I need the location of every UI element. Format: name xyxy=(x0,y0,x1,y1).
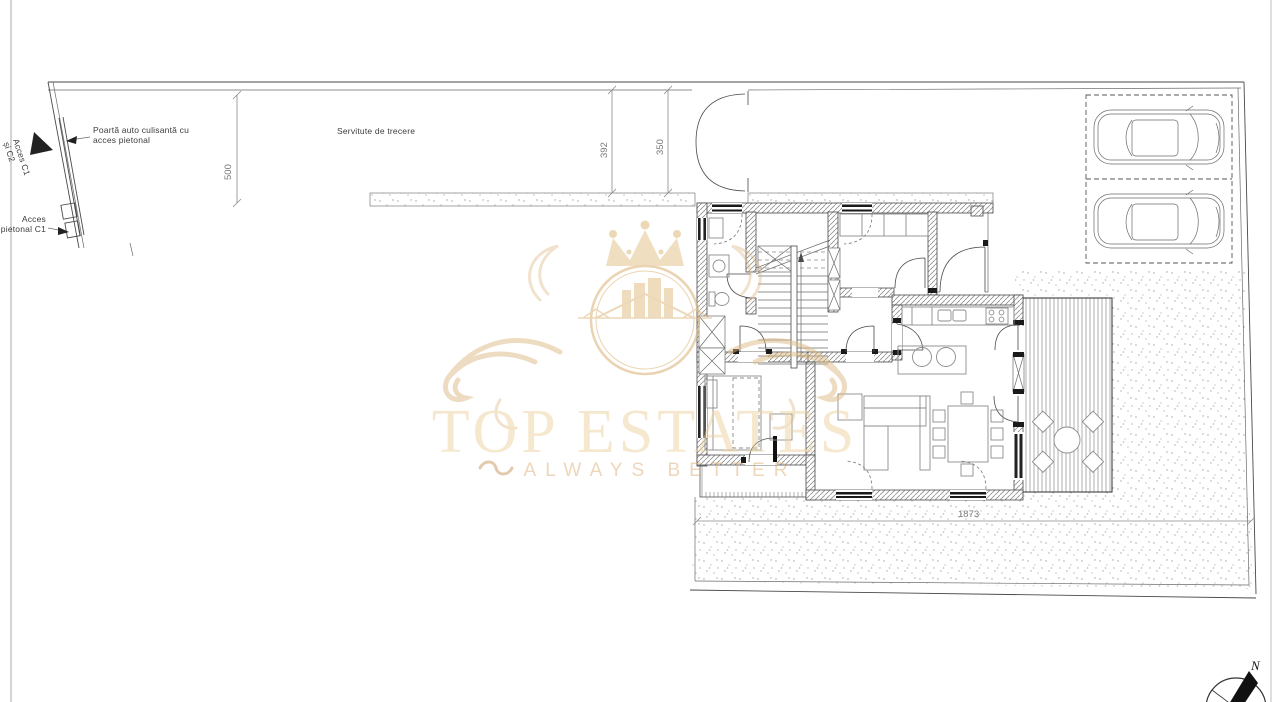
car-2 xyxy=(1094,190,1224,254)
site-plan-page: TOP ESTATES ALWAYS BETTER 500 392 350 18… xyxy=(0,0,1280,702)
svg-text:pietonal C1: pietonal C1 xyxy=(1,224,46,234)
brand-tagline: ALWAYS BETTER xyxy=(524,460,797,481)
dimension-392: 392 xyxy=(599,86,616,197)
dimension-500: 500 xyxy=(223,91,241,207)
floor-plan-drawing: TOP ESTATES ALWAYS BETTER 500 392 350 18… xyxy=(0,0,1280,702)
access-c1c2-label: Acces C1 și C2 xyxy=(2,132,53,180)
brand-name: TOP ESTATES xyxy=(432,398,859,466)
deck-door-openings xyxy=(1013,326,1024,480)
parking-area xyxy=(1086,95,1232,263)
svg-text:392: 392 xyxy=(599,142,610,158)
svg-text:350: 350 xyxy=(655,139,666,155)
svg-text:Acces: Acces xyxy=(22,214,46,224)
entrance-double-gate xyxy=(696,91,748,192)
car-1 xyxy=(1094,106,1224,170)
north-label: N xyxy=(1250,658,1261,673)
svg-text:1873: 1873 xyxy=(958,509,979,520)
dimension-350: 350 xyxy=(655,86,672,197)
svg-text:500: 500 xyxy=(223,164,234,180)
svg-text:acces pietonal: acces pietonal xyxy=(93,135,150,145)
svg-text:Poartă auto culisantă cu: Poartă auto culisantă cu xyxy=(93,125,189,135)
gate-label: Poartă auto culisantă cu acces pietonal xyxy=(66,125,189,145)
compass: N xyxy=(1206,658,1266,702)
servitude-label: Servitute de trecere xyxy=(337,126,415,136)
deck-terrace xyxy=(1022,298,1112,492)
